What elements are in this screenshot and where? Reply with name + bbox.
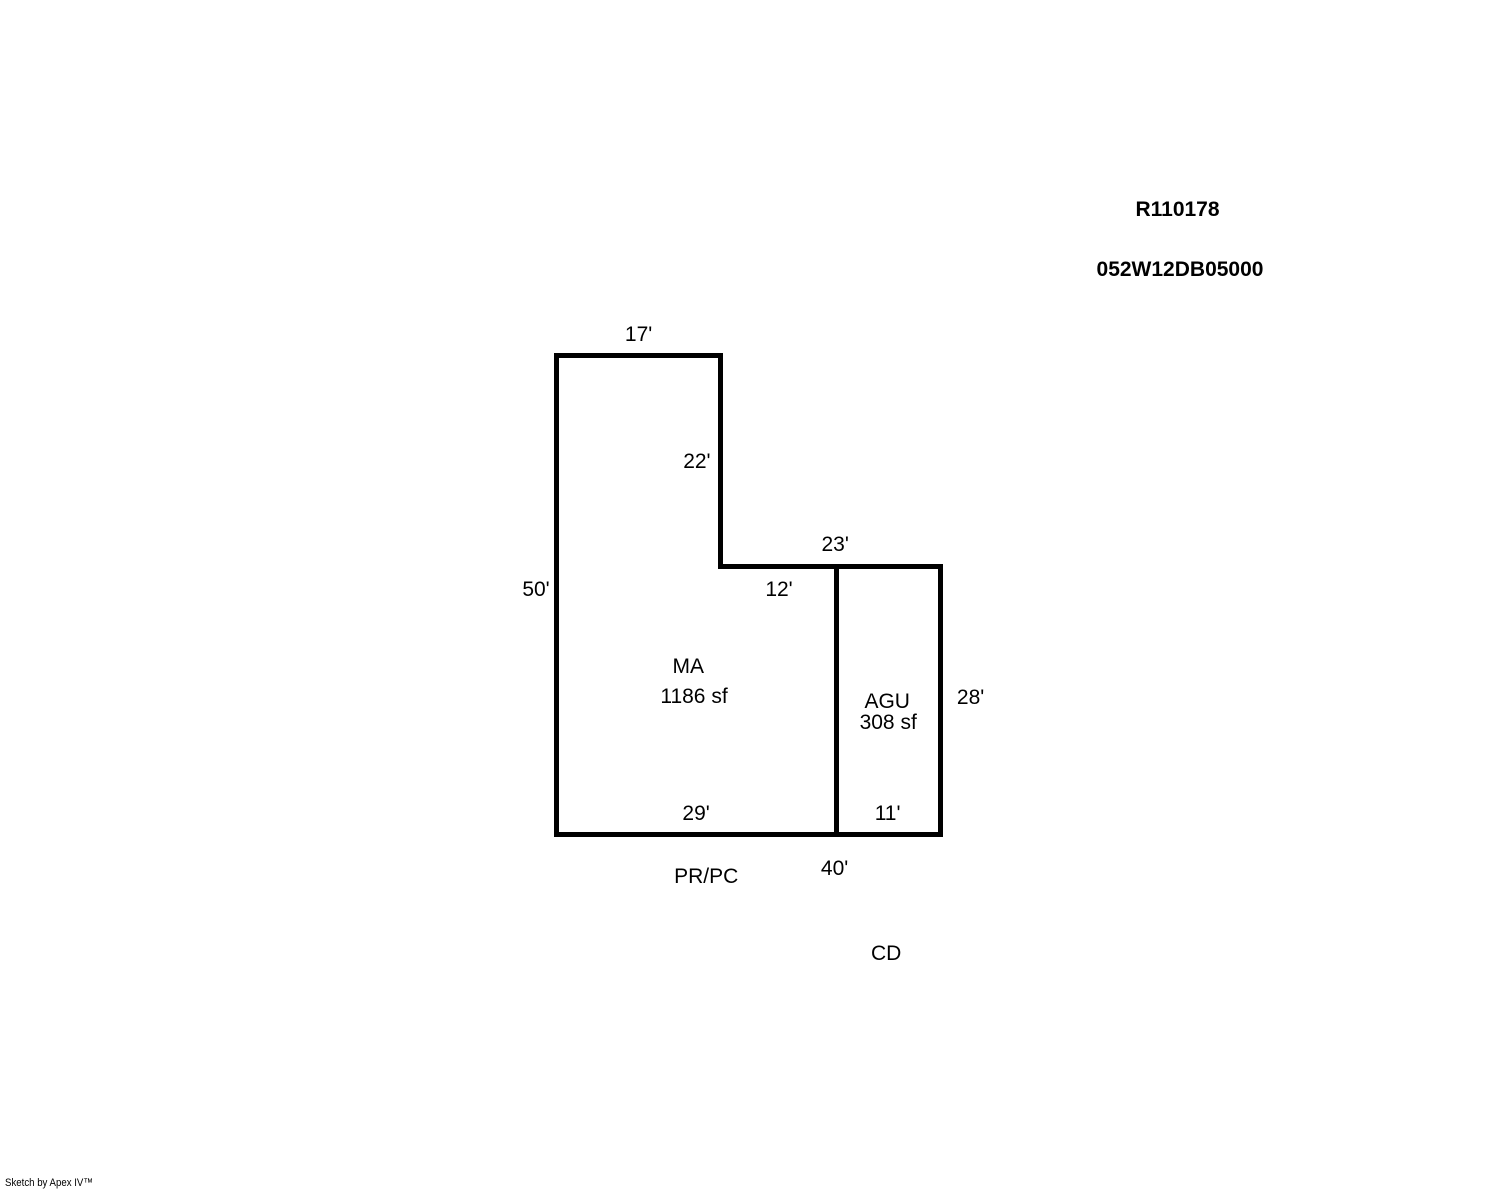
svg-text:40': 40': [821, 857, 848, 880]
svg-text:11': 11': [875, 802, 901, 825]
svg-text:R110178: R110178: [1135, 198, 1219, 221]
svg-text:Sketch by Apex IV™: Sketch by Apex IV™: [5, 1177, 93, 1189]
svg-text:23': 23': [822, 533, 849, 556]
svg-text:17': 17': [625, 323, 652, 346]
svg-text:29': 29': [682, 802, 709, 825]
svg-text:28': 28': [957, 686, 984, 709]
svg-text:12': 12': [765, 578, 792, 601]
svg-text:AGU: AGU: [864, 690, 910, 713]
svg-text:50': 50': [522, 578, 549, 601]
svg-text:MA: MA: [673, 655, 705, 678]
svg-text:22': 22': [683, 450, 710, 473]
svg-text:052W12DB05000: 052W12DB05000: [1097, 258, 1264, 281]
svg-text:CD: CD: [871, 942, 901, 965]
svg-text:308 sf: 308 sf: [860, 711, 917, 734]
svg-text:PR/PC: PR/PC: [674, 865, 738, 888]
svg-text:1186 sf: 1186 sf: [660, 685, 727, 708]
